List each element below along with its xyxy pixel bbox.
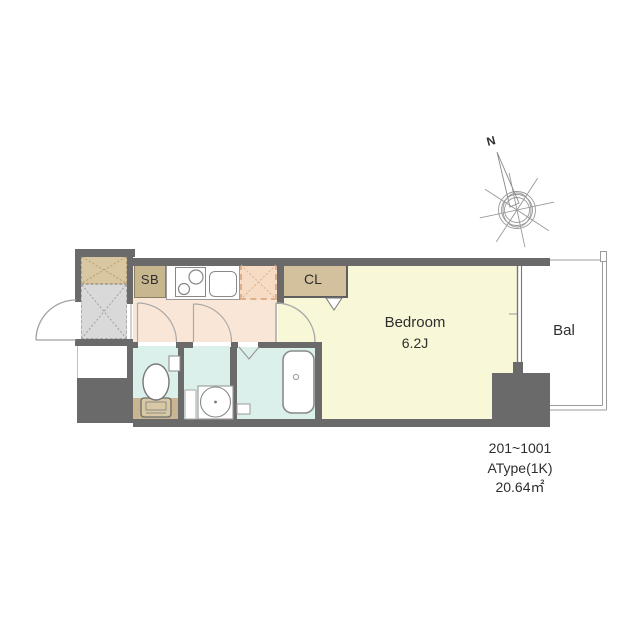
balcony-label: Bal — [528, 322, 600, 339]
exterior-recess — [77, 346, 128, 379]
unit-info-block: 201~1001 AType(1K) 20.64㎡ — [440, 439, 600, 498]
entrance-genkan-floor — [81, 284, 127, 339]
entrance-upper-storage — [81, 256, 127, 284]
bedroom-size-label: 6.2J — [337, 335, 493, 351]
room-bathroom — [237, 347, 315, 419]
shoe-box-label: SB — [134, 272, 166, 287]
entrance-door-arc — [36, 300, 76, 340]
toilet-mat — [133, 398, 178, 419]
wall-wet-top-a — [133, 342, 138, 348]
pillar-bottom-right — [492, 373, 550, 425]
kitchen-sink — [209, 271, 237, 297]
wall-entrance-right — [127, 256, 133, 304]
wall-bathroom-top — [258, 342, 322, 348]
wall-left-mass — [77, 378, 133, 423]
wall-bottom — [133, 419, 550, 427]
closet-label: CL — [278, 271, 348, 287]
compass-north-label: N — [481, 132, 500, 150]
bedroom-label: Bedroom — [337, 314, 493, 331]
wall-genkan-bottom — [75, 339, 133, 346]
wall-washroom-bathroom — [230, 347, 237, 419]
wall-top — [133, 258, 550, 266]
wall-toilet-washroom — [178, 346, 184, 419]
compass-rose — [480, 152, 554, 247]
unit-type-text: AType(1K) — [440, 459, 600, 479]
unit-floors-text: 201~1001 — [440, 439, 600, 459]
window-end-stub — [513, 362, 523, 374]
stove-unit — [175, 267, 206, 297]
floorplan-canvas: SB CL Bedroom 6.2J Bal N 201~1001 AType(… — [0, 0, 640, 640]
wall-entrance-left — [75, 249, 81, 302]
unit-area-text: 20.64㎡ — [440, 478, 600, 498]
refrigerator-space — [240, 264, 277, 300]
room-washroom — [184, 346, 230, 419]
wall-entrance-top — [75, 249, 135, 257]
wall-bathroom-right — [315, 347, 322, 419]
